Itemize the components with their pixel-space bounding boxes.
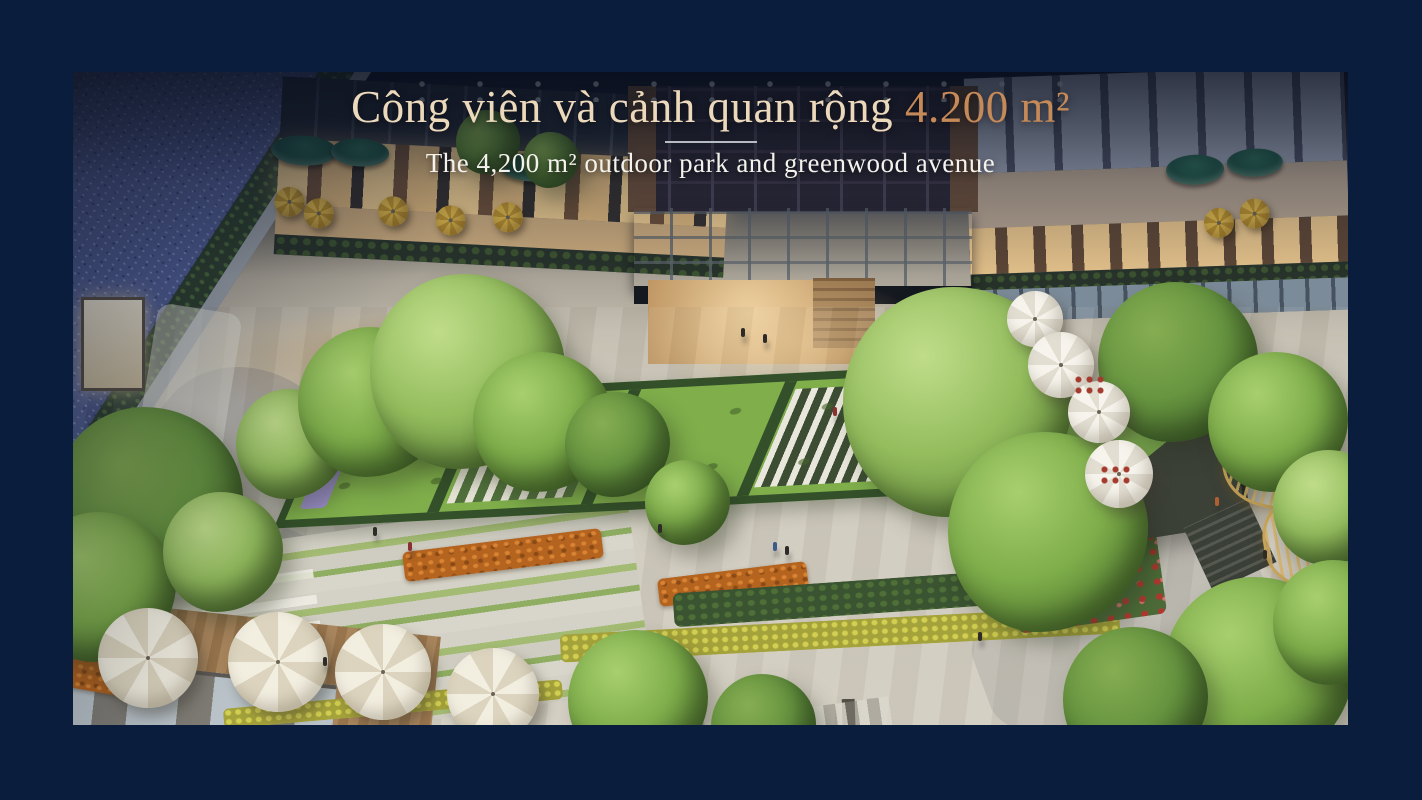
title-text: Công viên và cảnh quan rộng bbox=[351, 82, 905, 132]
cafe-umbrella bbox=[335, 624, 431, 720]
person-figure bbox=[785, 546, 789, 555]
person-figure bbox=[763, 334, 767, 343]
cafe-umbrella bbox=[98, 608, 198, 708]
title-area-value: 4.200 m² bbox=[905, 82, 1070, 132]
person-figure bbox=[1263, 550, 1267, 559]
cafe-chairs bbox=[1099, 464, 1133, 486]
caption-block: Công viên và cảnh quan rộng 4.200 m² The… bbox=[73, 72, 1348, 179]
person-figure bbox=[773, 542, 777, 551]
page-title: Công viên và cảnh quan rộng 4.200 m² bbox=[73, 72, 1348, 134]
slide-frame: Công viên và cảnh quan rộng 4.200 m² The… bbox=[0, 0, 1422, 800]
person-figure bbox=[408, 542, 412, 551]
person-figure bbox=[373, 527, 377, 536]
cafe-chairs bbox=[1073, 374, 1107, 396]
corner-shop bbox=[81, 297, 145, 391]
person-figure bbox=[833, 407, 837, 416]
person-figure bbox=[1215, 497, 1219, 506]
page-subtitle: The 4,200 m² outdoor park and greenwood … bbox=[73, 148, 1348, 179]
person-figure bbox=[978, 632, 982, 641]
person-figure bbox=[741, 328, 745, 337]
cafe-umbrella bbox=[228, 612, 328, 712]
title-divider bbox=[665, 141, 757, 143]
person-figure bbox=[323, 657, 327, 666]
person-figure bbox=[658, 524, 662, 533]
park-aerial-rendering: Công viên và cảnh quan rộng 4.200 m² The… bbox=[73, 72, 1348, 725]
